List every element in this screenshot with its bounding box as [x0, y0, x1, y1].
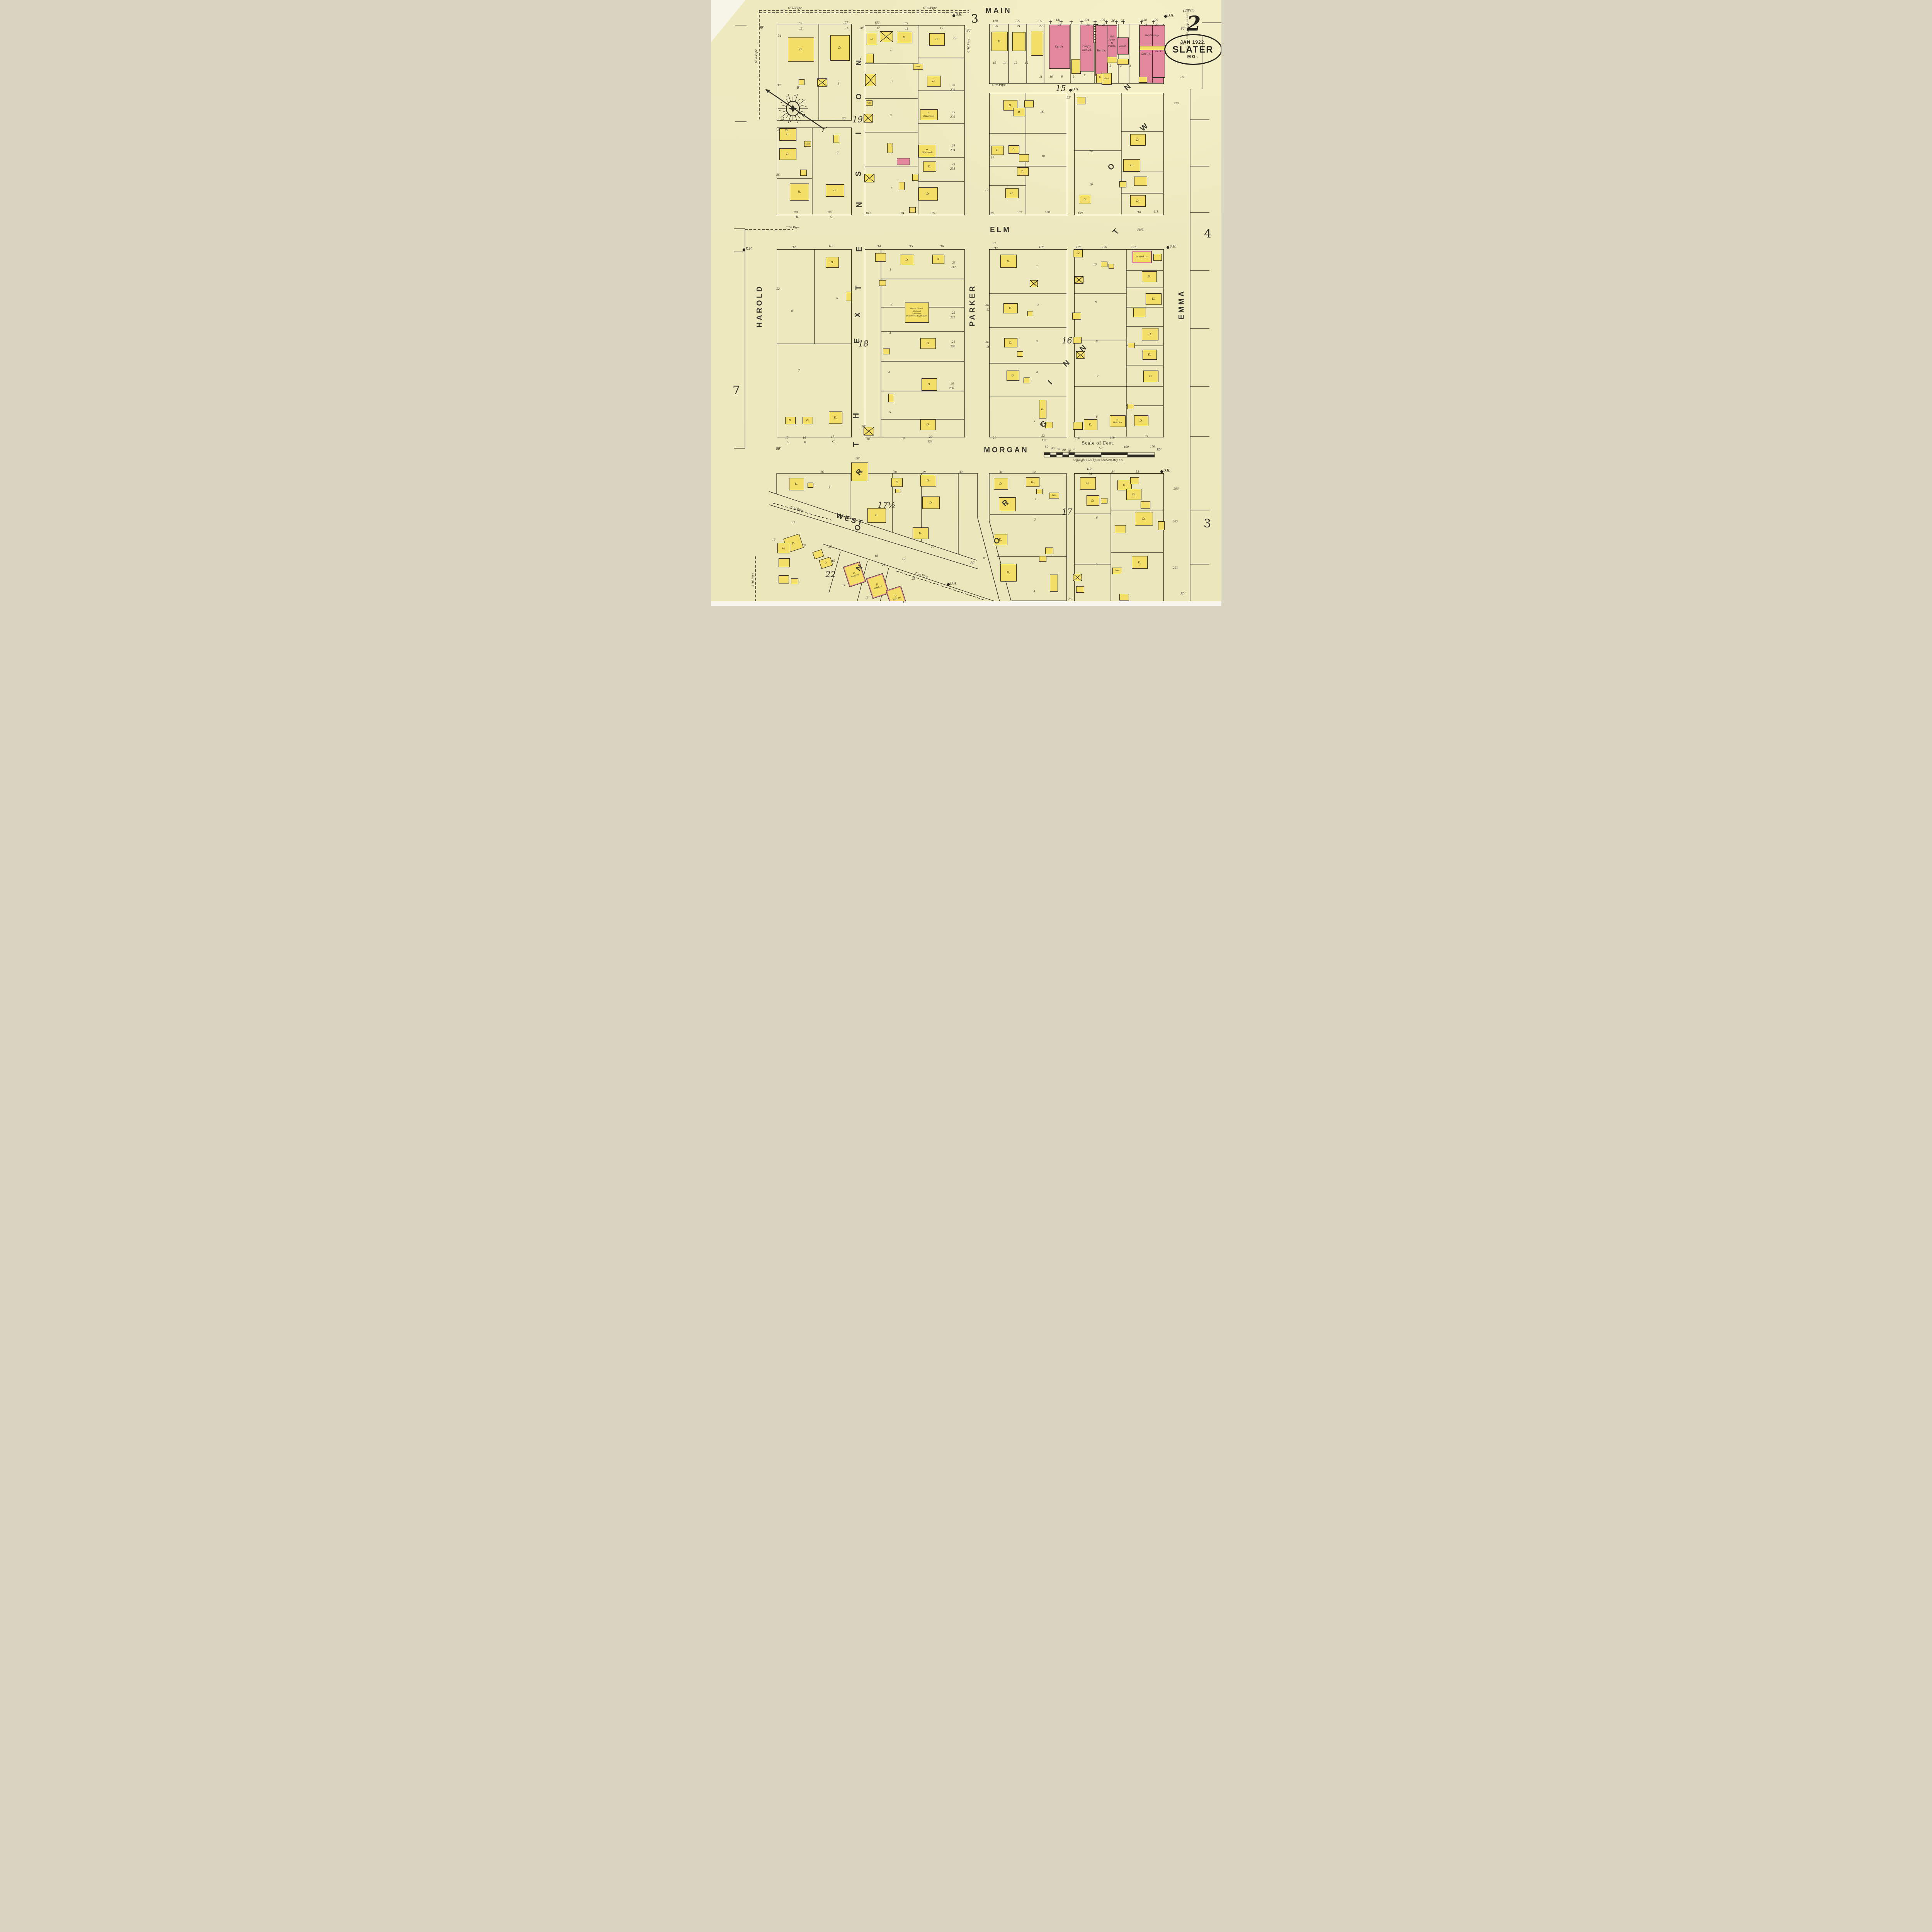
lot-number: 17: [991, 156, 994, 159]
building: [1101, 262, 1107, 267]
building-label: D.: [903, 36, 906, 39]
building-label: D.: [798, 190, 801, 194]
building-label: D.: [1091, 499, 1094, 502]
building-d: D.: [1084, 420, 1097, 430]
street-width-label: 80': [1180, 27, 1185, 31]
lot-number: 29: [922, 470, 926, 474]
building-label: D.: [831, 260, 834, 264]
building: [889, 394, 894, 402]
street-label-morgan: MORGAN: [984, 447, 1029, 454]
lot-number: 4: [1120, 65, 1121, 68]
building-hardw: Hardw.: [1096, 26, 1107, 76]
building: [1037, 489, 1042, 494]
lot-number: 102: [827, 211, 832, 214]
lot-number: 3: [889, 331, 891, 335]
building-d: D.: [1127, 489, 1141, 500]
building-label: D.: [937, 257, 940, 261]
double-hydrant-dot: [952, 14, 955, 17]
scale-tick-label: 50: [1099, 446, 1102, 450]
city-name: SLATER: [1172, 45, 1213, 54]
compass-west-label: W: [785, 129, 788, 133]
lot-number: 6: [1099, 75, 1100, 79]
building-d: D.: [927, 76, 940, 86]
building-label: Auto: [1052, 494, 1056, 497]
lot-number: 1: [1035, 497, 1036, 501]
building-label: D.: [919, 531, 922, 535]
building-label: Auto: [867, 102, 871, 105]
lot-number: R.: [796, 215, 799, 219]
lot-number: 23: [952, 261, 956, 264]
building-label: D.: [1132, 493, 1135, 496]
building-d: D.: [994, 478, 1008, 489]
building-label: D.: [1142, 517, 1145, 520]
lot-number: S.: [830, 215, 832, 219]
scale-bar-segment: [1050, 455, 1056, 457]
lot-number: 6: [1096, 415, 1097, 418]
water-pipe-label: 6"W.Pipe: [966, 39, 970, 53]
lot-number: 30: [777, 83, 781, 87]
lot-number: 129: [1015, 19, 1020, 23]
lot-number: 124: [927, 440, 932, 443]
building: [897, 158, 910, 165]
lot-number: 221: [1180, 75, 1185, 79]
building: [864, 427, 874, 435]
building-d: D.: [900, 255, 914, 265]
building-label: Wall Paper & Paints.: [1107, 35, 1117, 48]
lot-number: 8: [1073, 75, 1074, 78]
lot-number: 236: [950, 88, 955, 92]
building-d-vend-1st: D. Vend.1st: [1132, 251, 1151, 263]
street-letter-s: S: [855, 171, 862, 176]
lot-number: 16: [803, 436, 806, 439]
lot-number: 121: [1131, 245, 1136, 249]
lot-number: 6: [1096, 516, 1097, 519]
building-label: D.: [791, 541, 795, 545]
lot-number: 5: [1033, 420, 1035, 423]
building-label: D.: [1007, 259, 1010, 263]
street-letter-h: H: [852, 413, 860, 418]
building: [910, 207, 915, 213]
building: [1120, 182, 1126, 187]
building-label: D.: [1148, 332, 1151, 336]
adjacent-sheet-number-4: 4: [1204, 228, 1211, 240]
building-label: D. (Stuccoed): [922, 148, 933, 154]
building-label: D.: [896, 481, 898, 484]
publication-ref: (2851): [1183, 9, 1194, 13]
lot-number: 104: [899, 211, 904, 215]
building-label: D. Vend.1st: [872, 582, 882, 590]
building-label: D.: [834, 416, 837, 419]
block-number-18: 18: [858, 340, 869, 348]
scale-bar-segment: [1044, 455, 1050, 457]
building: [899, 182, 904, 190]
lot-number: 4: [1036, 371, 1037, 374]
lot-number: 28: [1144, 23, 1147, 27]
lot-number: 14: [842, 583, 845, 587]
block-number-17½: 17½: [878, 502, 896, 510]
street-suffix-ave: Ave.: [1137, 228, 1145, 232]
building: [1158, 522, 1164, 530]
scale-bar-segment: [1128, 452, 1155, 455]
lot-number: 200: [950, 345, 955, 348]
building: [1115, 526, 1126, 533]
building-d: D. (Stuccoed): [919, 145, 936, 157]
water-pipe-label: 6"W.Pipe: [992, 83, 1006, 87]
water-pipe-label: 6"W.Pipe: [751, 573, 754, 587]
lot-number: 4: [891, 144, 892, 147]
building-d: D.: [1017, 168, 1028, 175]
building-label: Shed: [915, 65, 920, 68]
building-label: D.: [998, 39, 1001, 43]
building-label: D.: [929, 501, 932, 504]
building: [1024, 378, 1030, 383]
building: [1019, 155, 1029, 162]
lot-number: 5: [1096, 563, 1097, 566]
lot-number: 120: [1075, 437, 1080, 440]
building-tailor: Tailor.: [1117, 38, 1128, 54]
building: [1025, 101, 1033, 107]
scale-bar-segment: [1101, 452, 1128, 455]
building-d: D.: [1026, 478, 1039, 486]
building: [779, 559, 789, 567]
building-d: D.: [1118, 480, 1131, 490]
lot-number: 17: [831, 435, 834, 439]
building-label: Auto: [1115, 570, 1119, 572]
building: [1039, 556, 1046, 561]
lot-number: 96: [986, 345, 990, 349]
building-d: D.: [919, 188, 937, 200]
lot-number: 19: [902, 557, 905, 561]
building: [834, 135, 839, 143]
street-label-emma: EMMA: [1178, 289, 1185, 320]
building-d: D.: [1142, 272, 1156, 282]
city-block: [777, 249, 852, 437]
building-d: D.: [923, 162, 936, 171]
lot-number: 139: [1153, 18, 1158, 22]
building: [1077, 587, 1084, 592]
block-number-19: 19: [852, 116, 863, 124]
building-label: D.: [1021, 170, 1024, 173]
block-number-15: 15: [1056, 85, 1066, 93]
street-letter-t: T: [855, 286, 862, 290]
lot-number: 10: [802, 544, 806, 547]
building: [876, 253, 886, 261]
lot-number: 19: [985, 188, 988, 192]
building-d: D.: [1132, 556, 1147, 568]
building-label: Auto: [805, 143, 810, 145]
lot-number: 2: [890, 303, 892, 307]
building: [791, 579, 798, 584]
building: [865, 174, 874, 182]
lot-number: B.: [804, 440, 807, 444]
street-width-label: 80': [759, 26, 764, 30]
dimension-label: 20': [861, 425, 865, 428]
street-width-label: 80': [1156, 448, 1161, 452]
lot-number: 7: [1097, 374, 1098, 378]
building-label: D.: [927, 479, 930, 482]
lot-number: 4: [888, 371, 889, 374]
building: [1073, 574, 1082, 581]
building-label: D.: [928, 165, 931, 168]
building-label: D.: [1148, 353, 1151, 356]
lot-number: 101: [793, 211, 798, 214]
scale-tick-label: 0: [1073, 447, 1075, 451]
lot-number: 21: [1017, 24, 1020, 28]
state-name: MO.: [1187, 54, 1199, 59]
lot-number: 25: [1145, 435, 1148, 438]
building-d: D.: [913, 528, 928, 539]
lot-number: 110: [1136, 211, 1141, 214]
building-label: D.: [1009, 341, 1012, 344]
double-hydrant-label: D.H.: [1170, 245, 1177, 248]
lot-number: 1: [1036, 265, 1037, 268]
building-d: D. (Stuccoed): [920, 110, 937, 120]
double-hydrant-label: D.H.: [950, 582, 957, 585]
street-letter-o: O: [855, 94, 863, 100]
double-hydrant-label: D.H.: [746, 247, 753, 251]
building-label: D.: [1123, 483, 1126, 487]
lot-number: 21: [993, 241, 996, 245]
dimension-label: 8': [983, 556, 985, 560]
scale-tick-label: 20: [1062, 448, 1066, 452]
lot-number: 5: [891, 186, 892, 190]
building: [1134, 177, 1147, 185]
lot-number: 29: [953, 36, 956, 40]
dimension-label: 25': [1068, 597, 1072, 601]
building: [1128, 343, 1134, 348]
building-shed: Shed: [913, 64, 923, 69]
building-d: D.: [1087, 496, 1099, 505]
building-label: D.: [824, 561, 828, 565]
lot-number: 21: [993, 436, 996, 439]
street-letter-t: T: [852, 442, 860, 447]
building-label: D.: [875, 514, 878, 517]
lot-number: 2: [1034, 518, 1036, 521]
street-label-elm: ELM: [990, 226, 1011, 234]
lot-number: 26: [1111, 19, 1115, 22]
lot-number: 221: [950, 316, 955, 319]
street-letter-n: N.: [855, 58, 863, 66]
lot-number: 17: [876, 26, 880, 30]
building-d: D.: [1001, 564, 1016, 581]
building-d: D.: [1014, 108, 1025, 116]
building-label: D.: [928, 383, 931, 386]
building: [1073, 337, 1081, 343]
building-label: D.: [833, 189, 837, 192]
lot-number: 10: [1049, 75, 1053, 78]
lot-number: 232: [951, 265, 956, 269]
building-d: D.: [1079, 195, 1091, 204]
street-letter-i: I: [855, 132, 862, 134]
building: [1140, 46, 1165, 50]
building-label: D.: [996, 148, 999, 152]
lot-number: 24: [1086, 23, 1090, 27]
water-pipe-label: 6"W.Pipe: [788, 6, 802, 10]
lot-number: 117: [993, 247, 998, 250]
building-label: D. Vend.1st: [891, 593, 901, 601]
building: [1072, 60, 1080, 73]
lot-number: 8: [1096, 340, 1097, 343]
lot-number: 6: [837, 151, 838, 154]
lot-number: 3: [1036, 340, 1037, 343]
double-hydrant-dot: [743, 248, 745, 251]
building-label: D.: [838, 46, 842, 49]
lot-number: 30: [959, 470, 963, 474]
city-block: [1074, 473, 1164, 602]
scale-bar-segment: [1075, 452, 1101, 455]
lot-number: 21: [792, 520, 795, 524]
lot-number: 13: [865, 596, 869, 599]
city-block: [865, 249, 965, 437]
dimension-label: Metal Ceilings: [1145, 34, 1159, 37]
building-conf-ty: Conf'ty. Hall 2d.: [1080, 25, 1094, 71]
building-d: D. Open 1st: [1110, 416, 1125, 427]
building: [1117, 59, 1128, 64]
lot-number: 116: [939, 245, 944, 248]
building: [866, 74, 876, 86]
building-d: D.: [790, 184, 809, 200]
building-d: D.: [803, 417, 813, 424]
building-label: D.: [806, 419, 809, 422]
title-oval: JAN 1922. SLATER MO.: [1164, 34, 1221, 65]
lot-number: 22: [1041, 434, 1045, 437]
lot-number: 6: [836, 296, 838, 300]
building: [866, 54, 873, 63]
building: [864, 114, 872, 122]
building-label: Carp'r.: [1055, 45, 1063, 48]
building: [1153, 78, 1163, 83]
adjacent-sheet-number-7: 7: [733, 385, 740, 396]
lot-number: 25: [776, 173, 780, 177]
scale-tick-label: 150: [1150, 445, 1155, 448]
building-label: D.: [1138, 561, 1141, 564]
dimension-label: 20': [931, 545, 935, 548]
compass-ornament-dot: [790, 121, 791, 122]
building-label: D.: [1089, 423, 1092, 426]
building-d: D.: [826, 185, 844, 196]
compass-east-label: E: [797, 86, 799, 90]
building-label: D.: [1041, 408, 1044, 411]
street-label-main: MAIN: [985, 7, 1012, 15]
lot-number: 5: [889, 410, 891, 414]
building: [1028, 311, 1033, 316]
building-d: D.: [868, 509, 886, 522]
building-d: D.: [921, 338, 935, 349]
building-d: D.: [992, 146, 1003, 155]
building-label: D.: [1083, 198, 1086, 201]
lot-number: 109: [1078, 211, 1083, 215]
lot-number: 32: [1032, 470, 1036, 474]
building-d: D.: [933, 255, 944, 264]
lot-number: 158: [797, 22, 802, 25]
building-label: Hardw.: [1097, 49, 1106, 52]
lot-number: 15: [993, 61, 996, 65]
building-d: D.: [789, 478, 804, 490]
lot-number: 15: [785, 436, 789, 439]
building-d: D.: [1146, 294, 1161, 304]
page-number: 2: [1187, 14, 1201, 34]
scale-bar-segment: [1056, 455, 1063, 457]
building-d: D.: [1007, 371, 1019, 380]
double-hydrant-label: D.H.: [1072, 88, 1079, 91]
building-label: D.: [1149, 374, 1152, 378]
building-label: D.: [789, 419, 792, 422]
building-label: D.: [1086, 481, 1089, 485]
building-label: Tailor.: [1119, 44, 1126, 48]
lot-number: 103: [866, 211, 871, 215]
lot-number: 3: [890, 114, 891, 117]
building: [896, 489, 900, 493]
lot-number: 19: [901, 437, 905, 440]
lot-number: 22: [1039, 24, 1043, 28]
lot-number: 19: [940, 26, 943, 30]
lot-number: 206: [1173, 487, 1179, 490]
building-d: D.: [780, 149, 796, 160]
building-label: D.: [1031, 480, 1034, 484]
compass-needle-arrowhead: [765, 89, 770, 93]
scale-tick-label: 40: [1051, 447, 1054, 450]
lot-number: 22: [952, 311, 955, 315]
lot-number: 18: [866, 437, 870, 441]
scan-edge-bottom: [711, 601, 1221, 606]
building-d: D.: [1131, 196, 1145, 206]
building-d: D.: [867, 33, 877, 45]
building-label: D. (Stuccoed): [923, 112, 934, 118]
water-pipe-label: 6"W.Pipe: [923, 6, 937, 10]
lot-number: 12: [903, 600, 906, 604]
lot-number: 9: [1061, 75, 1063, 78]
building-label: D.: [1136, 138, 1139, 141]
lot-number: 8: [791, 309, 793, 313]
building-label: D.: [1130, 163, 1133, 167]
lot-number: 26: [820, 470, 824, 474]
building-label: D.: [905, 258, 908, 262]
scale-legend-title: Scale of Feet.: [1082, 440, 1115, 446]
building-label: D.: [1152, 297, 1155, 301]
lot-number: 52: [776, 287, 780, 291]
building: [1046, 548, 1053, 554]
lot-number: 13: [1014, 61, 1017, 65]
street-width-label: 80': [970, 561, 975, 565]
double-hydrant-dot: [1167, 246, 1169, 249]
building-label: D.: [1148, 275, 1151, 278]
lot-number: 23: [1058, 23, 1061, 27]
lot-number: 107: [1017, 211, 1022, 214]
building: [1109, 264, 1114, 268]
lot-number: 128: [993, 19, 998, 23]
building: [1031, 31, 1043, 55]
lot-number: 204: [1173, 566, 1178, 570]
building-d: D.: [892, 478, 902, 486]
building: [913, 174, 918, 180]
lot-number: 111: [1154, 210, 1158, 213]
building-label: D.: [871, 37, 873, 41]
lot-number: 138: [1142, 18, 1147, 22]
scale-bar-segment: [1128, 455, 1155, 457]
building-d: D.: [1005, 338, 1017, 347]
building-d: D.: [921, 420, 935, 430]
adjacent-sheet-number-3: 3: [1204, 518, 1211, 530]
street-label-parker: PARKER: [969, 284, 976, 327]
building: [1101, 498, 1107, 503]
building-d: D.: [1009, 146, 1019, 153]
lot-number: 205: [1173, 520, 1178, 523]
lot-number: 2: [891, 80, 893, 83]
double-hydrant-dot: [1164, 15, 1167, 18]
lot-number: 7: [798, 369, 799, 372]
scale-bar-segment: [1069, 455, 1075, 457]
lot-number: 12: [1025, 61, 1028, 65]
